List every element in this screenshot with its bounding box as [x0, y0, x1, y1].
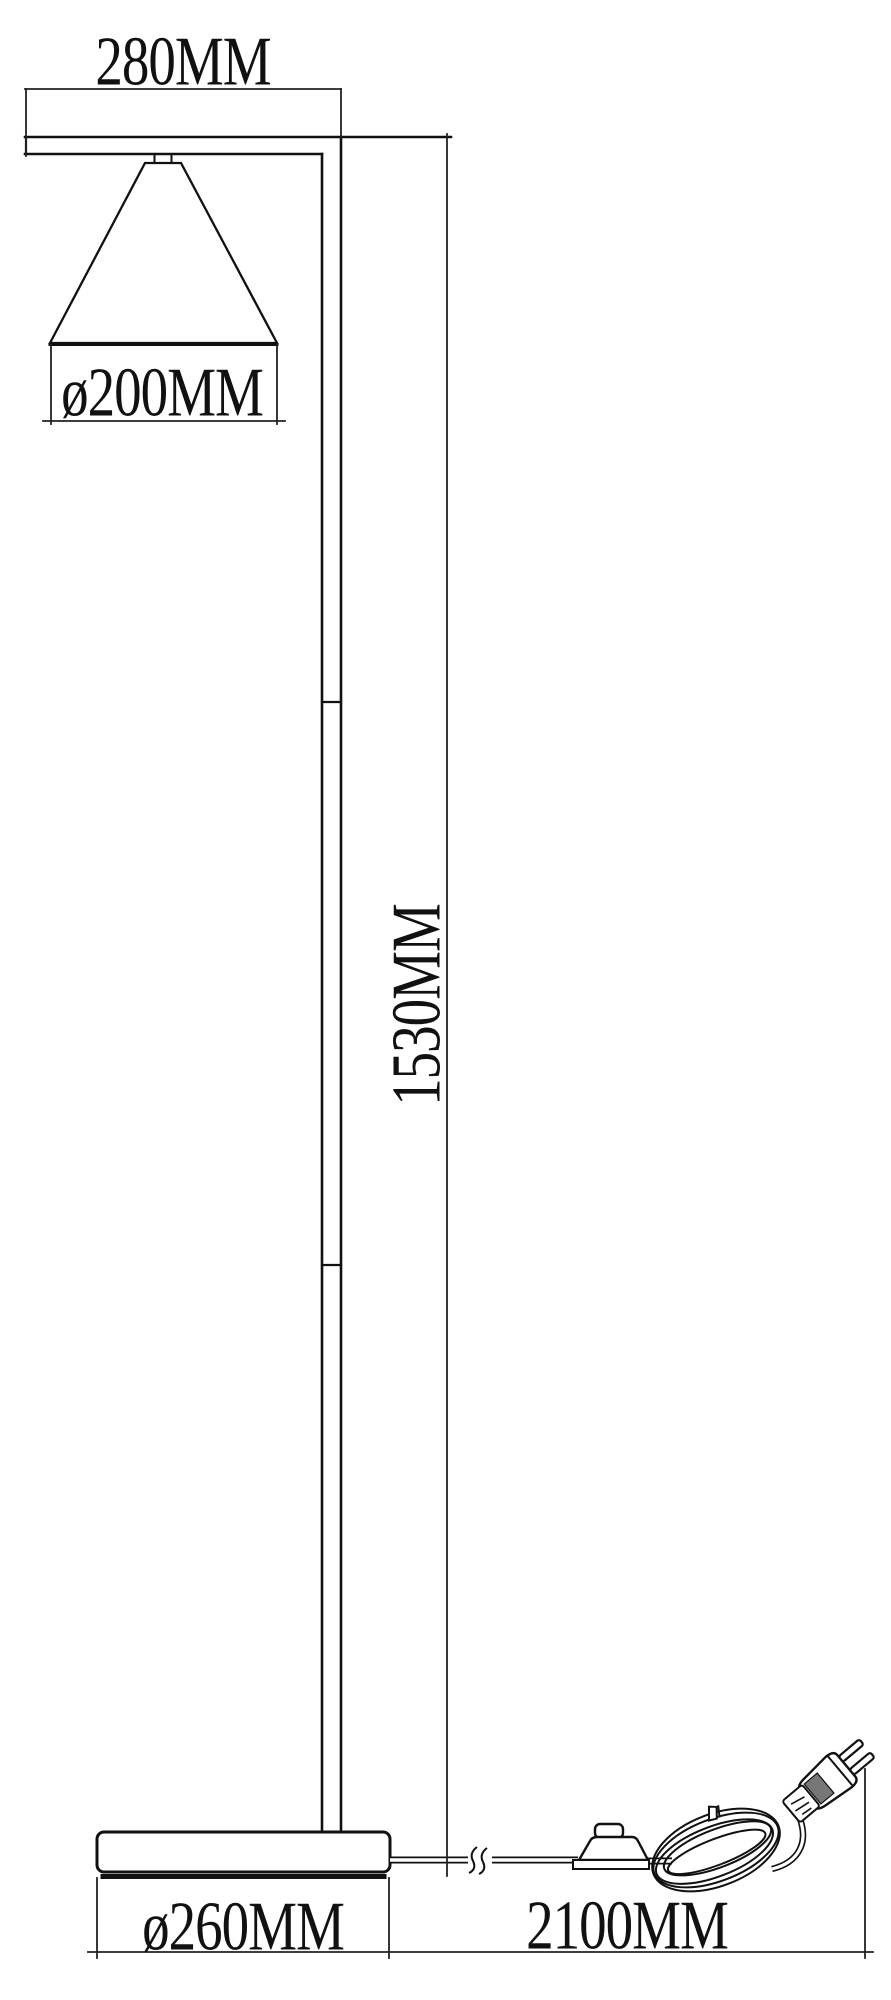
dimension-label-lamp-height: 1530MM — [381, 904, 451, 1106]
dimension-label-shade-diameter: ø200MM — [61, 357, 263, 427]
dimension-label-arm-width: 280MM — [95, 26, 270, 96]
lamp-base — [97, 1832, 390, 1877]
dimension-drawing: 280MM ø200MM 1530MM ø260MM 2100MM — [0, 0, 891, 2000]
dimension-label-base-diameter: ø260MM — [142, 1891, 344, 1961]
foot-switch — [573, 1824, 649, 1869]
dimension-label-cord-length: 2100MM — [526, 1890, 728, 1960]
shade-stem — [155, 154, 172, 163]
cord-break-icon — [469, 1847, 487, 1874]
lamp-pole — [317, 137, 347, 1832]
lamp-arm — [25, 137, 451, 154]
cord-tie-icon — [704, 1803, 722, 1821]
lamp-shade — [50, 163, 277, 345]
power-cord-assembly — [390, 1733, 880, 1908]
